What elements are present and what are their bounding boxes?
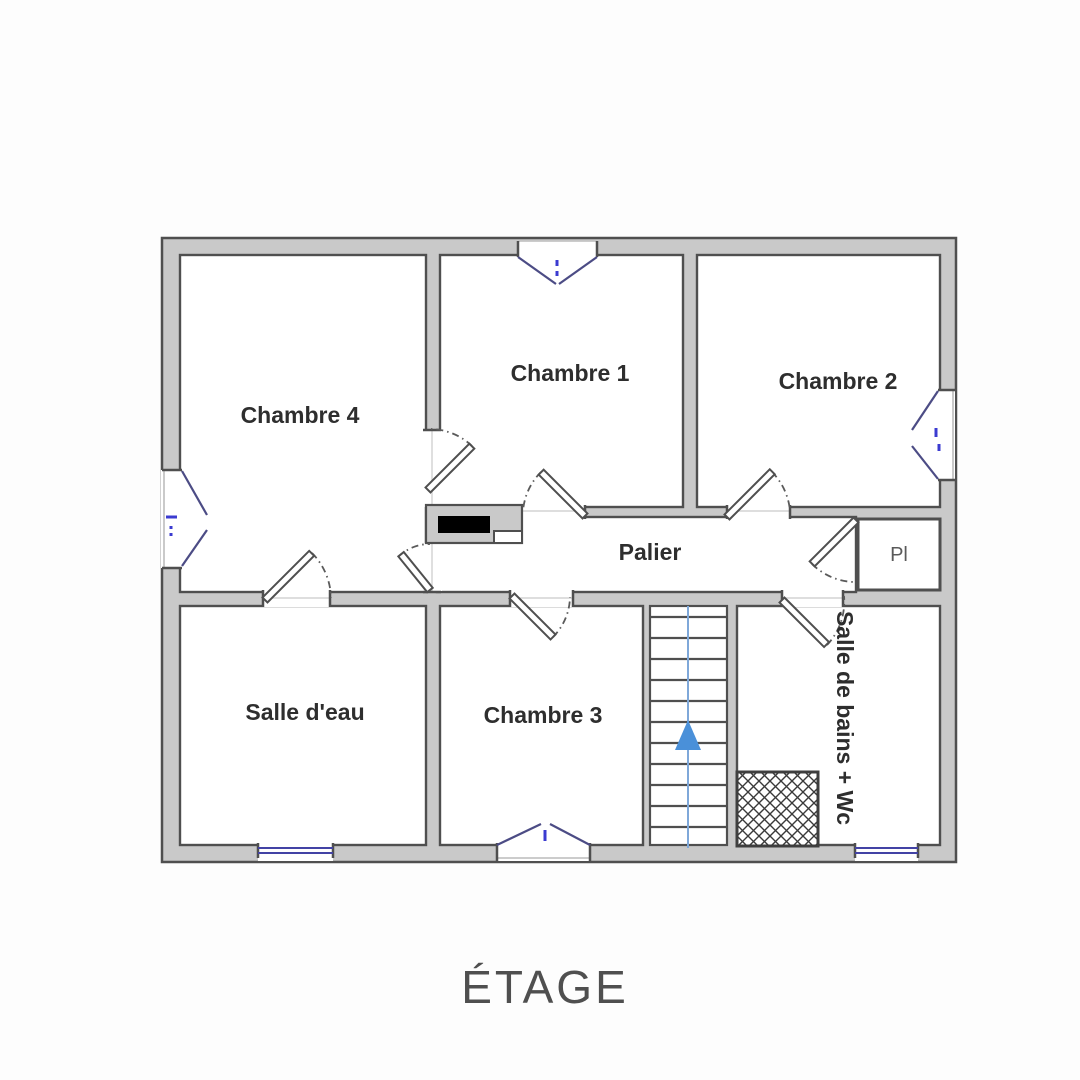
flue-duct-black-block	[438, 516, 490, 533]
floor-title: ÉTAGE	[461, 961, 629, 1013]
room-label-chambre-2: Chambre 2	[779, 368, 898, 394]
room-label-palier: Palier	[619, 539, 682, 565]
hatched-area	[737, 772, 818, 846]
palier-west-wall-stub	[426, 505, 522, 543]
floor-plan-page: Chambre 1 Chambre 2 Chambre 3 Chambre 4 …	[0, 0, 1080, 1080]
room-label-chambre-1: Chambre 1	[511, 360, 630, 386]
room-label-salle-de-bains: Salle de bains + Wc	[832, 611, 858, 825]
room-salle-deau-area	[180, 606, 426, 845]
floor-plan-svg: Chambre 1 Chambre 2 Chambre 3 Chambre 4 …	[0, 0, 1080, 1080]
room-label-chambre-3: Chambre 3	[484, 702, 603, 728]
room-label-chambre-4: Chambre 4	[241, 402, 360, 428]
room-label-placard: Pl	[890, 544, 908, 566]
room-label-salle-deau: Salle d'eau	[245, 699, 364, 725]
